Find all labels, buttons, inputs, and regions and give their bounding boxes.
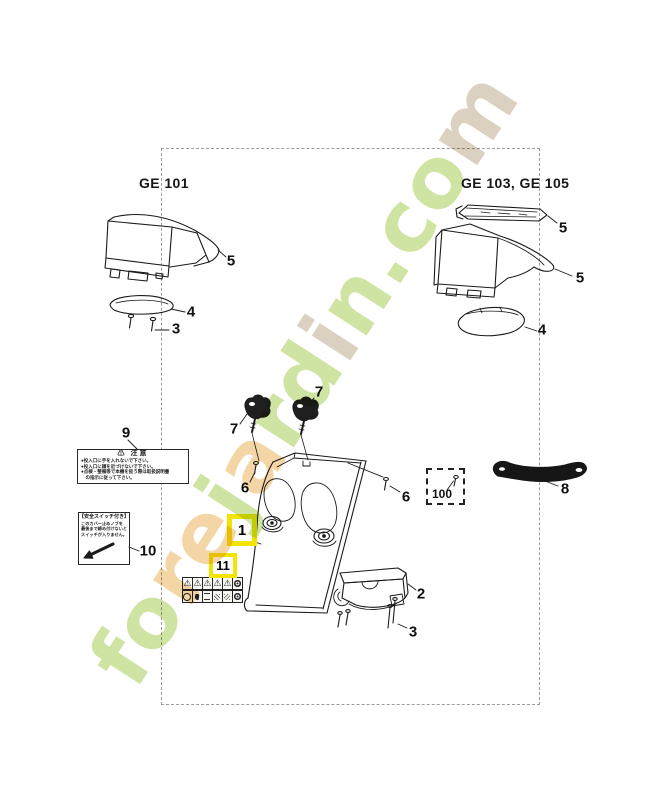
leader-line [218,250,226,257]
callout-knob-left-7: 7 [230,421,238,438]
knob-icon [240,395,270,461]
leader-line [390,486,400,492]
callout-label-9: 9 [122,425,130,442]
shield-badge-icon [232,590,243,603]
group-title-ge101: GE 101 [139,175,189,191]
warning-label-line: の指示に従って下さい。 [78,475,188,481]
highlighted-part-1[interactable]: 1 [227,514,257,546]
screw-icon [128,314,155,331]
prohibition-badge-icon [232,577,243,590]
screw-icon [250,462,258,483]
switch-label-10: 【安全スイッチ付き】 このカバー止めノブを 最後まで締め付けないと スイッチが入… [78,512,130,565]
highlighted-part-11[interactable]: 11 [209,553,237,578]
pictogram-row-top [182,577,242,590]
leader-line [408,584,416,590]
callout-strip-8: 8 [561,481,569,498]
callout-knob-right-7: 7 [315,384,323,401]
part-1-number: 1 [238,522,246,539]
callout-ge101-4: 4 [187,304,195,321]
ge101-cover-housing-drawing [105,215,226,281]
hardware-ref-box-100: 100 [426,468,465,505]
callout-ge101-3: 3 [172,321,180,338]
screw-icon [348,463,400,492]
warning-label-header: ⚠ 注意 [78,450,188,458]
leader-line [548,216,557,223]
leader-line [240,414,247,424]
ge103-rail-drawing [456,205,557,223]
pictogram-row-bottom [182,590,242,603]
switch-label-line: スイッチが入りません。 [79,532,129,537]
seal-strip-drawing [493,461,586,486]
part-11-number: 11 [216,558,230,573]
group-title-ge103-ge105: GE 103, GE 105 [461,175,569,191]
ge103-cover-housing-drawing [434,224,572,298]
switch-label-header: 【安全スイッチ付き】 [79,513,129,521]
leader-line [250,472,255,482]
callout-box-2: 2 [417,586,425,603]
callout-label-10: 10 [140,543,157,560]
hardware-ref-number: 100 [432,487,452,501]
knob-icon [293,397,318,460]
callout-ge103-4: 4 [538,322,546,339]
warning-label-9: ⚠ 注意 ●投入口に手を入れないで下さい。 ●投入口に顔を近づけないで下さい。 … [77,449,189,484]
callout-screws-3: 3 [409,624,417,641]
callout-ge103-rail-5: 5 [559,220,567,237]
callout-screw-right-6: 6 [402,489,410,506]
ge103-plate-drawing [458,307,537,336]
parts-diagram-page: GE 101 GE 103, GE 105 5 4 3 5 5 4 7 7 6 … [0,0,652,800]
callout-ge101-5: 5 [227,253,235,270]
leader-line [398,624,407,628]
callout-screw-left-6: 6 [241,480,249,497]
leader-line [555,269,572,276]
callout-ge103-cover-5: 5 [576,270,584,287]
switch-box-drawing [334,568,416,610]
leader-line [525,327,537,331]
safety-pictogram-sticker [182,577,242,603]
exploded-view-line-art [0,0,652,800]
